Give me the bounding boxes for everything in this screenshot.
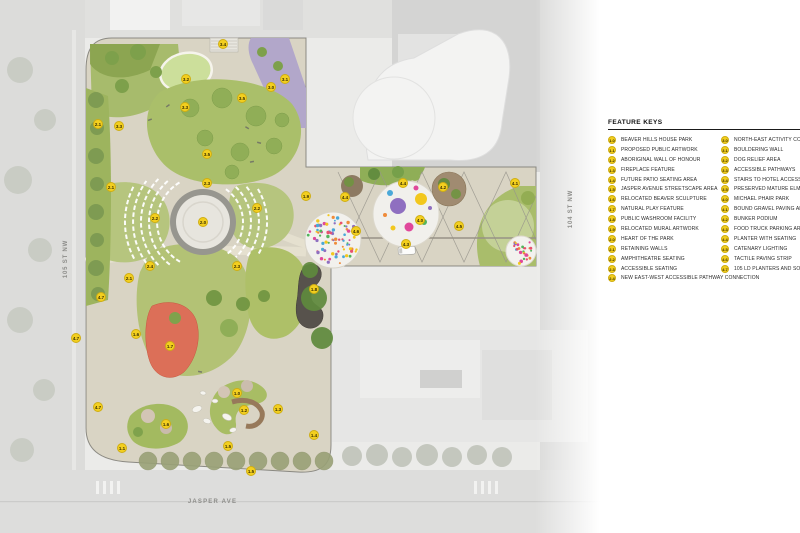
legend-item: 3.1BOULDERING WALL: [721, 146, 800, 154]
legend-item-label: RELOCATED MURAL ARTWORK: [621, 226, 699, 232]
right-fade: [535, 0, 600, 533]
map-badge-4.2: 4.2: [438, 182, 448, 192]
legend-item: 4.4PLANTER WITH SEATING: [721, 235, 800, 243]
legend-key-badge: 4.4: [721, 235, 729, 243]
map-badge-4.6: 4.6: [351, 226, 361, 236]
map-badge-4.1: 4.1: [510, 178, 520, 188]
map-badge-3.3: 3.3: [114, 121, 124, 131]
map-badge-4.5: 4.5: [454, 221, 464, 231]
legend-item: 1.4FUTURE PATIO SEATING AREA: [608, 176, 721, 184]
map-badge-4.7: 4.7: [96, 292, 106, 302]
legend-column-1: 1.0BEAVER HILLS HOUSE PARK1.1PROPOSED PU…: [608, 136, 721, 284]
legend-columns: 1.0BEAVER HILLS HOUSE PARK1.1PROPOSED PU…: [608, 136, 800, 284]
legend-item-label: 105 LD PLANTERS AND SOIL CELLS: [734, 266, 800, 272]
map-badge-4.7: 4.7: [93, 402, 103, 412]
legend-item: 3.3ACCESSIBLE PATHWAYS: [721, 166, 800, 174]
legend-item: 4.0MICHAEL PHAIR PARK: [721, 195, 800, 203]
map-badge-1.3: 1.3: [273, 404, 283, 414]
legend-key-badge: 2.0: [608, 235, 616, 243]
legend-item-label: PROPOSED PUBLIC ARTWORK: [621, 147, 698, 153]
street-label-jasper-ave: JASPER AVE: [185, 499, 240, 505]
legend-item-label: ACCESSIBLE SEATING: [621, 266, 677, 272]
map-badge-1.5: 1.5: [246, 466, 256, 476]
legend-key-badge: 1.6: [608, 195, 616, 203]
legend-title: FEATURE KEYS: [608, 119, 800, 126]
legend-key-badge: 2.1: [608, 245, 616, 253]
legend-item-label: PUBLIC WASHROOM FACILITY: [621, 216, 696, 222]
map-badge-1.4: 1.4: [309, 430, 319, 440]
map-badge-4.7: 4.7: [71, 333, 81, 343]
street-label-104-st-nw: 104 ST NW: [568, 189, 574, 229]
map-badge-1.8: 1.8: [309, 284, 319, 294]
legend-key-badge: 2.3: [608, 265, 616, 273]
legend-item: 1.7NATURAL PLAY FEATURE: [608, 205, 721, 213]
legend-item-label: PRESERVED MATURE ELMS: [734, 186, 800, 192]
legend-item: 4.3FOOD TRUCK PARKING AREA: [721, 225, 800, 233]
legend-item-label: FOOD TRUCK PARKING AREA: [734, 226, 800, 232]
legend-key-badge: 1.9: [608, 225, 616, 233]
legend-item: 1.9RELOCATED MURAL ARTWORK: [608, 225, 721, 233]
legend-item: 3.2DOG RELIEF AREA: [721, 156, 800, 164]
map-badge-3.5: 3.5: [237, 93, 247, 103]
map-badge-2.4: 2.4: [145, 261, 155, 271]
map-badge-2.1: 2.1: [106, 182, 116, 192]
map-badge-2.3: 2.3: [232, 261, 242, 271]
map-badge-3.0: 3.0: [266, 82, 276, 92]
legend-item-label: ABORIGINAL WALL OF HONOUR: [621, 157, 700, 163]
legend-item: 1.8PUBLIC WASHROOM FACILITY: [608, 215, 721, 223]
legend-item: 3.4STAIRS TO HOTEL ACCESS: [721, 176, 800, 184]
legend-item: 2.0HEART OF THE PARK: [608, 235, 721, 243]
map-badge-2.2: 2.2: [150, 213, 160, 223]
map-badge-3.3: 3.3: [180, 102, 190, 112]
map-badge-1.5: 1.5: [223, 441, 233, 451]
map-badge-2.2: 2.2: [252, 203, 262, 213]
legend-item: 1.6RELOCATED BEAVER SCULPTURE: [608, 195, 721, 203]
legend-item-label: BEAVER HILLS HOUSE PARK: [621, 137, 692, 143]
map-badge-1.6: 1.6: [131, 329, 141, 339]
legend-item: 3.0NORTH-EAST ACTIVITY CORNER: [721, 136, 800, 144]
south-west-mound: [127, 404, 188, 449]
legend-item: 4.1BOUND GRAVEL PAVING AREA: [721, 205, 800, 213]
map-badge-3.1: 3.1: [280, 74, 290, 84]
map-badge-2.3: 2.3: [202, 178, 212, 188]
site-plan-svg: [0, 0, 600, 533]
legend-key-badge: 3.1: [721, 146, 729, 154]
legend-item-label: PLANTER WITH SEATING: [734, 236, 796, 242]
bunker-podium-planter: [432, 172, 466, 206]
legend-item-label: DOG RELIEF AREA: [734, 157, 781, 163]
map-badge-1.7: 1.7: [165, 341, 175, 351]
legend-item: 4.5CATENARY LIGHTING: [721, 245, 800, 253]
legend-key-badge: 1.4: [608, 176, 616, 184]
legend-item: 3.5PRESERVED MATURE ELMS: [721, 185, 800, 193]
jasper-streetscape-trees: [139, 452, 333, 470]
legend-item: 4.7105 LD PLANTERS AND SOIL CELLS: [721, 265, 800, 273]
map-badge-1.6: 1.6: [161, 419, 171, 429]
legend-item: 1.2ABORIGINAL WALL OF HONOUR: [608, 156, 721, 164]
legend-item: 1.3FIREPLACE FEATURE: [608, 166, 721, 174]
map-badge-1.2: 1.2: [239, 405, 249, 415]
map-badge-1.1: 1.1: [117, 443, 127, 453]
legend-key-badge: 1.8: [608, 215, 616, 223]
legend-key-badge: 4.6: [721, 255, 729, 263]
legend-key-badge: 3.5: [721, 185, 729, 193]
legend-item-label: NATURAL PLAY FEATURE: [621, 206, 684, 212]
legend-item: 2.4NEW EAST-WEST ACCESSIBLE PATHWAY CONN…: [608, 274, 721, 282]
legend-item: 1.5JASPER AVENUE STREETSCAPE AREA: [608, 185, 721, 193]
map-badge-1.9: 1.9: [301, 191, 311, 201]
map-badge-4.4: 4.4: [340, 192, 350, 202]
legend-item-label: NORTH-EAST ACTIVITY CORNER: [734, 137, 800, 143]
feature-keys-legend: FEATURE KEYS 1.0BEAVER HILLS HOUSE PARK1…: [608, 119, 800, 284]
legend-key-badge: 3.0: [721, 136, 729, 144]
map-badge-4.4: 4.4: [398, 178, 408, 188]
legend-rule: [608, 129, 800, 130]
legend-key-badge: 1.7: [608, 205, 616, 213]
map-badge-3.5: 3.5: [202, 149, 212, 159]
site-plan-screenshot: 105 ST NW 104 ST NW JASPER AVE 3.43.23.1…: [0, 0, 800, 533]
legend-item-label: RETAINING WALLS: [621, 246, 668, 252]
street-label-105-st-nw: 105 ST NW: [63, 239, 69, 279]
map-badge-3.2: 3.2: [181, 74, 191, 84]
legend-key-badge: 1.3: [608, 166, 616, 174]
legend-item-label: CATENARY LIGHTING: [734, 246, 787, 252]
legend-column-2: 3.0NORTH-EAST ACTIVITY CORNER3.1BOULDERI…: [721, 136, 800, 284]
legend-item-label: FIREPLACE FEATURE: [621, 167, 675, 173]
legend-key-badge: 4.0: [721, 195, 729, 203]
map-badge-4.3: 4.3: [401, 239, 411, 249]
map-badge-2.0: 2.0: [198, 217, 208, 227]
legend-item: 2.1RETAINING WALLS: [608, 245, 721, 253]
legend-item-label: MICHAEL PHAIR PARK: [734, 196, 789, 202]
map-badge-4.0: 4.0: [415, 215, 425, 225]
legend-key-badge: 4.7: [721, 265, 729, 273]
legend-key-badge: 1.2: [608, 156, 616, 164]
legend-key-badge: 3.2: [721, 156, 729, 164]
legend-key-badge: 2.2: [608, 255, 616, 263]
legend-item: 4.2BUNKER PODIUM: [721, 215, 800, 223]
legend-key-badge: 1.0: [608, 136, 616, 144]
legend-item-label: STAIRS TO HOTEL ACCESS: [734, 177, 800, 183]
legend-item: 1.1PROPOSED PUBLIC ARTWORK: [608, 146, 721, 154]
legend-key-badge: 1.1: [608, 146, 616, 154]
legend-item-label: RELOCATED BEAVER SCULPTURE: [621, 196, 707, 202]
legend-key-badge: 4.3: [721, 225, 729, 233]
map-badge-2.1: 2.1: [124, 273, 134, 283]
legend-item: 2.3ACCESSIBLE SEATING: [608, 265, 721, 273]
legend-key-badge: 2.4: [608, 274, 616, 282]
legend-item-label: BOULDERING WALL: [734, 147, 783, 153]
legend-item: 4.6TACTILE PAVING STRIP: [721, 255, 800, 263]
legend-item-label: BOUND GRAVEL PAVING AREA: [734, 206, 800, 212]
legend-item: 1.0BEAVER HILLS HOUSE PARK: [608, 136, 721, 144]
legend-item-label: HEART OF THE PARK: [621, 236, 674, 242]
map-badge-2.1: 2.1: [93, 119, 103, 129]
map-badge-1.0: 1.0: [232, 388, 242, 398]
legend-item-label: ACCESSIBLE PATHWAYS: [734, 167, 795, 173]
legend-key-badge: 4.2: [721, 215, 729, 223]
legend-key-badge: 3.4: [721, 176, 729, 184]
legend-item-label: JASPER AVENUE STREETSCAPE AREA: [621, 186, 718, 192]
play-dot-circle: [373, 181, 439, 247]
legend-item-label: TACTILE PAVING STRIP: [734, 256, 792, 262]
legend-item-label: BUNKER PODIUM: [734, 216, 778, 222]
legend-key-badge: 1.5: [608, 185, 616, 193]
map-badge-3.4: 3.4: [218, 39, 228, 49]
legend-item-label: AMPHITHEATRE SEATING: [621, 256, 685, 262]
legend-key-badge: 3.3: [721, 166, 729, 174]
legend-key-badge: 4.1: [721, 205, 729, 213]
legend-key-badge: 4.5: [721, 245, 729, 253]
legend-item: 2.2AMPHITHEATRE SEATING: [608, 255, 721, 263]
legend-item-label: FUTURE PATIO SEATING AREA: [621, 177, 697, 183]
